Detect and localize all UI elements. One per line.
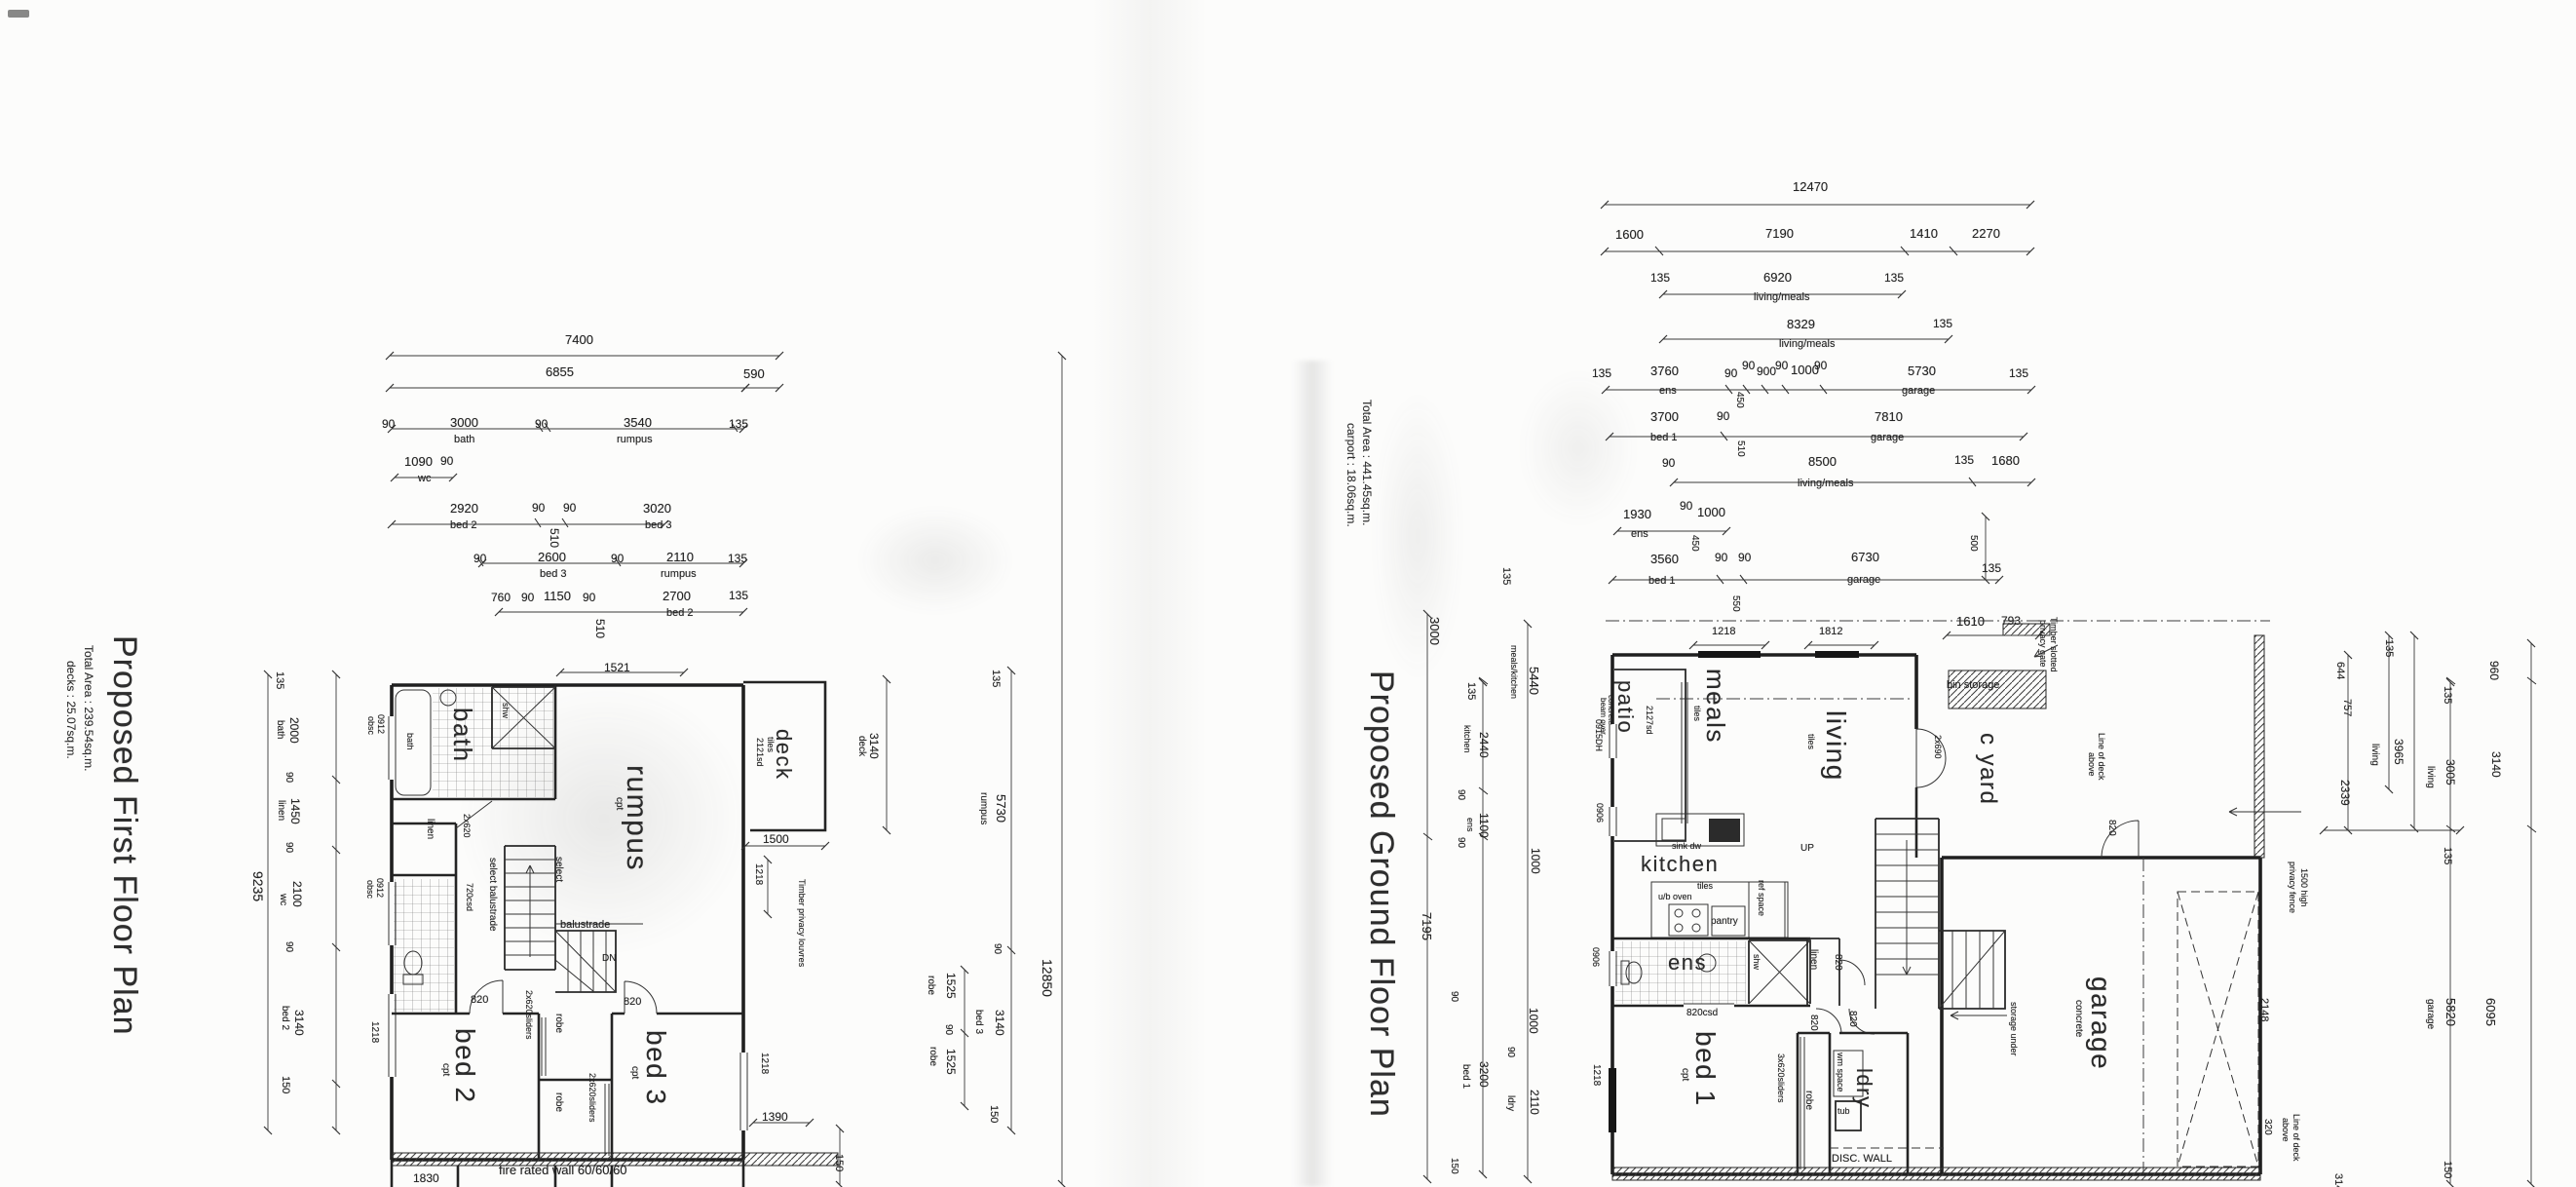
plan-label: 3005 <box>2444 759 2456 785</box>
stair-arrows <box>1903 840 2007 1019</box>
plan-label: 1100 <box>1478 813 1490 838</box>
first-floor-area-decks: decks : 25.07sq.m. <box>64 661 78 759</box>
plan-label: 3760 <box>1650 364 1679 377</box>
plan-label: cpt <box>440 1063 450 1076</box>
plan-label: 90 <box>440 455 453 467</box>
plan-label: shw <box>1752 954 1761 970</box>
plan-label: kitchen <box>1641 854 1719 875</box>
plan-label: 1500 <box>763 833 789 845</box>
plan-label: 2x620 <box>462 814 471 838</box>
plan-label: 90 <box>611 553 624 564</box>
plan-label: 3965 <box>2393 739 2405 765</box>
plan-label: 90 <box>1724 367 1737 379</box>
plan-label: 1390 <box>762 1111 788 1123</box>
plan-label: 793 <box>2001 615 2021 627</box>
cooktop <box>1669 904 1708 936</box>
plan-label: 90 <box>992 943 1002 954</box>
plan-label: wc <box>418 474 431 484</box>
plan-label: bed 1 <box>1650 433 1678 443</box>
plan-label: privacy fence <box>2288 862 2296 913</box>
plan-label: 2339 <box>2339 780 2351 806</box>
plan-label: 1090 <box>404 455 433 468</box>
plan-label: u/b oven <box>1658 893 1692 901</box>
plan-label: Line of deck <box>2292 1114 2300 1162</box>
plan-label: living/meals <box>1754 292 1809 303</box>
plan-label: 550 <box>1730 595 1740 612</box>
plan-label: 90 <box>521 592 534 603</box>
plan-label: 6920 <box>1763 271 1792 284</box>
plan-label: 2920 <box>450 502 478 515</box>
plan-label: meals/kitchen <box>1509 645 1518 699</box>
top-window-bar <box>1815 651 1859 658</box>
plan-label: 8500 <box>1808 455 1837 468</box>
plan-label: 135 <box>1650 272 1670 284</box>
plan-label: 1500 high <box>2299 868 2308 907</box>
plan-label: 0912 <box>376 714 385 734</box>
plan-label: 1610 <box>1956 615 1985 628</box>
plan-label: 450 <box>1734 392 1744 408</box>
plan-label: shw <box>501 703 510 718</box>
plan-label: ens <box>1631 529 1648 540</box>
plan-label: 90 <box>1742 360 1755 371</box>
plan-label: 2127sd <box>1645 706 1653 735</box>
plan-label: 820 <box>471 995 488 1006</box>
plan-label: 720csd <box>465 883 474 911</box>
plan-label: 2121sd <box>755 738 764 767</box>
plan-label: 6095 <box>2484 998 2497 1026</box>
plan-label: robe <box>928 1047 937 1066</box>
plan-label: pantry <box>1711 917 1738 927</box>
plan-label: bed 2 <box>450 520 477 531</box>
plan-label: living <box>1822 710 1849 782</box>
plan-label: 2x690 <box>1933 735 1942 759</box>
ground-floor-area-total: Total Area : 441.45sq.m. <box>1360 400 1374 525</box>
plan-label: meals <box>1703 669 1728 744</box>
plan-label: 3200 <box>1478 1061 1490 1088</box>
plan-label: 2600 <box>538 551 566 563</box>
plan-label: above <box>2087 752 2096 777</box>
plan-label: balustrade <box>560 920 610 931</box>
plan-label: 2700 <box>663 590 691 602</box>
plan-label: ens <box>1659 386 1677 397</box>
plan-label: bed 3 <box>973 1010 983 1034</box>
plan-label: cpt <box>1680 1068 1689 1081</box>
plan-label: 5820 <box>2444 998 2457 1026</box>
plan-label: 90 <box>532 502 545 514</box>
plan-label: 1830 <box>413 1172 439 1184</box>
plan-label: 1000 <box>1697 506 1725 518</box>
plan-label: 1000 <box>1528 1008 1539 1034</box>
dishwasher <box>1709 819 1740 842</box>
plan-label: 1600 <box>1615 228 1644 241</box>
plan-label: DN <box>602 954 616 964</box>
plan-label: 1218 <box>759 1053 769 1074</box>
plan-label: 135 <box>1500 567 1511 585</box>
plan-label: 150 <box>833 1154 844 1171</box>
plan-label: 5440 <box>1528 667 1540 695</box>
plan-label: 12850 <box>1041 959 1054 997</box>
plan-label: rumpus <box>661 569 697 580</box>
plan-label: ref space <box>1757 880 1765 916</box>
plan-label: 3020 <box>643 502 671 515</box>
plan-label: 820 <box>2106 820 2116 836</box>
plan-label: 7810 <box>1875 410 1903 423</box>
plan-label: 135 <box>2009 367 2028 379</box>
plan-label: 1450 <box>289 798 301 824</box>
plan-label: 2270 <box>1972 227 2000 240</box>
plan-label: robe <box>926 976 935 995</box>
plan-label: 3140 <box>868 733 880 759</box>
plan-label: obsc <box>366 716 375 735</box>
plan-label: 9235 <box>251 871 265 901</box>
plan-label: bed 2 <box>666 608 694 619</box>
plan-label: linen <box>1808 949 1818 970</box>
plan-label: robe <box>553 1092 563 1112</box>
plan-label: select <box>553 857 563 882</box>
plan-label: obsc <box>365 880 374 899</box>
plan-label: 760 <box>491 592 511 603</box>
plan-label: tiles <box>766 737 775 752</box>
privacy-fence-hatch <box>2254 635 2264 858</box>
plan-label: garage <box>1847 575 1880 586</box>
plan-label: 135 <box>729 418 748 430</box>
bottom-wall-hatch <box>1612 1168 2260 1180</box>
plan-label: 135 <box>990 670 1001 687</box>
plan-label: rumpus <box>617 435 653 445</box>
plan-label: tiles <box>1692 706 1701 721</box>
plan-label: 135 <box>1884 272 1904 284</box>
plan-label: concrete <box>2073 1000 2083 1037</box>
plan-label: storage under <box>2009 1002 2018 1056</box>
plan-label: bath <box>454 435 474 445</box>
plan-label: bin storage <box>1947 680 1999 691</box>
plan-label: ldry <box>1853 1068 1875 1108</box>
plan-label: 510 <box>1735 440 1745 457</box>
plan-label: 7195 <box>1421 912 1433 940</box>
plan-label: 3140 <box>2332 1173 2343 1187</box>
plan-label: ens <box>1668 952 1707 974</box>
plan-label: living <box>2369 744 2379 766</box>
plan-label: 2000 <box>288 717 300 744</box>
plan-label: 90 <box>1449 991 1458 1002</box>
plan-label: c yard <box>1976 733 1999 805</box>
plan-label: Timber privacy louvres <box>797 879 806 967</box>
plan-label: 90 <box>1814 360 1827 371</box>
burner <box>1675 924 1683 932</box>
door-arcs <box>1816 960 1875 1034</box>
plan-label: 1000 <box>1530 848 1541 874</box>
plan-label: above <box>2281 1118 2290 1142</box>
plan-label: 3140 <box>2490 751 2502 778</box>
plan-label: 90 <box>382 418 395 430</box>
plan-label: bath <box>450 708 475 763</box>
plan-label: 90 <box>1456 837 1465 848</box>
plan-label: 1218 <box>1591 1064 1601 1086</box>
plan-label: 644 <box>2334 662 2345 679</box>
burner <box>1675 909 1683 917</box>
plan-label: 90 <box>563 502 576 514</box>
plan-label: 1521 <box>604 662 630 673</box>
plan-label: 1410 <box>1910 227 1938 240</box>
plan-label: cpt <box>614 797 624 810</box>
plan-label: rumpus <box>622 765 651 871</box>
plan-label: 6730 <box>1851 551 1879 563</box>
plan-linework <box>0 0 2576 1187</box>
plan-label: 3000 <box>450 416 478 429</box>
ground-floor-title: Proposed Ground Floor Plan <box>1362 670 1400 1118</box>
burner <box>1692 924 1700 932</box>
plan-label: 135 <box>2442 847 2452 864</box>
plan-label: 820 <box>1833 954 1842 971</box>
ground-floor-area-carport: carport : 18.06sq.m. <box>1345 423 1358 527</box>
plan-label: deck <box>856 736 866 756</box>
plan-label: privacy gate <box>2038 620 2047 668</box>
plan-label: 1525 <box>945 1049 957 1075</box>
plan-label: 7400 <box>565 333 593 346</box>
plan-label: 135 <box>1465 682 1476 700</box>
plan-label: 150 <box>988 1105 999 1123</box>
shower-x <box>1749 940 1810 1004</box>
first-floor-title: Proposed First Floor Plan <box>105 635 143 1036</box>
plan-label: 0906 <box>1595 803 1604 823</box>
plan-label: bath <box>405 733 414 750</box>
plan-label: 2x620sliders <box>587 1073 596 1123</box>
plan-label: garage <box>2087 976 2114 1070</box>
plan-label: concrete <box>1607 695 1614 725</box>
plan-label: bed 3 <box>642 1030 669 1106</box>
plan-label: robe <box>1803 1091 1813 1110</box>
plan-label: 0906 <box>1591 947 1600 967</box>
plan-label: 590 <box>743 367 765 380</box>
plan-label: Line of deck <box>2097 733 2105 781</box>
plan-label: 757 <box>2341 699 2352 716</box>
first-floor-area-total: Total Area : 239.54sq.m. <box>82 645 95 771</box>
plan-label: 1218 <box>369 1021 379 1043</box>
plan-label: living/meals <box>1779 339 1835 350</box>
plan-label: UP <box>1800 844 1814 854</box>
plan-label: garage <box>2425 999 2435 1029</box>
burner <box>1692 909 1700 917</box>
plan-label: patio <box>1614 680 1636 734</box>
plan-label: DISC. WALL <box>1832 1154 1892 1165</box>
plan-label: 3540 <box>624 416 652 429</box>
plan-label: 90 <box>284 772 293 783</box>
plan-label: 135 <box>274 671 284 689</box>
plan-label: 90 <box>1456 789 1465 800</box>
plan-label: 1680 <box>1991 454 2020 467</box>
plan-label: 510 <box>594 619 606 638</box>
plan-label: 3140 <box>994 1010 1005 1036</box>
plan-label: 135 <box>2383 639 2394 657</box>
plan-label: 135 <box>2442 686 2452 704</box>
plan-label: garage <box>1871 433 1904 443</box>
plan-label: ldry <box>1505 1095 1515 1111</box>
plan-label: bed 2 <box>280 1006 289 1030</box>
plan-label: bed 3 <box>540 569 567 580</box>
plan-label: 1525 <box>945 973 957 999</box>
ref-space-box <box>1749 882 1785 938</box>
plan-label: 90 <box>1775 360 1788 371</box>
plan-label: 2110 <box>1529 1090 1540 1115</box>
plan-label: 12470 <box>1793 180 1828 193</box>
plan-label: 3x620sliders <box>1776 1053 1785 1103</box>
plan-label: bed 1 <box>1648 576 1676 587</box>
plan-label: 3560 <box>1650 553 1679 565</box>
plan-label: 1150 <box>544 590 571 602</box>
plan-label: 500 <box>1968 535 1978 552</box>
plan-label: 2x620sliders <box>524 990 533 1040</box>
plan-label: 90 <box>583 592 595 603</box>
plan-label: 90 <box>943 1024 953 1035</box>
plan-label: robe <box>553 1014 563 1033</box>
ground-floor-plan <box>1423 205 2536 1184</box>
plan-label: 0912 <box>375 878 384 898</box>
plan-label: sink dw <box>1672 842 1701 851</box>
plan-label: 90 <box>1662 457 1675 469</box>
plan-label: 820csd <box>1686 1009 1718 1018</box>
plan-label: 6855 <box>546 365 574 378</box>
plan-label: 1812 <box>1819 627 1842 637</box>
plan-label: 135 <box>1592 367 1611 379</box>
plan-label: 3700 <box>1650 410 1679 423</box>
plan-label: Timber slotted <box>2049 617 2058 672</box>
plan-label: 150 <box>280 1076 290 1093</box>
plan-label: 3140 <box>293 1010 305 1036</box>
plan-label: 960 <box>2488 661 2500 680</box>
bed1-window-bar <box>1609 1068 1616 1132</box>
plan-label: 820 <box>1808 1015 1818 1031</box>
plan-label: wm space <box>1836 1053 1844 1092</box>
plan-label: 150 <box>1449 1158 1458 1174</box>
plan-label: 90 <box>1717 410 1729 422</box>
plan-label: 135 <box>1982 562 2001 574</box>
plan-label: 5730 <box>995 794 1007 823</box>
scanned-floor-plan-page: Proposed First Floor Plan Total Area : 2… <box>0 0 2576 1187</box>
top-window-bar <box>1698 651 1761 658</box>
plan-label: 135 <box>1933 318 1952 329</box>
plan-label: 135 <box>1954 454 1974 466</box>
plan-label: bed 2 <box>451 1028 478 1104</box>
plan-label: tiles <box>1806 734 1815 749</box>
bedroom-walls <box>456 1014 743 1160</box>
plan-label: select balustrade <box>487 858 497 932</box>
plan-label: 8329 <box>1787 318 1815 330</box>
plan-label: 90 <box>474 553 486 564</box>
plan-label: 90 <box>1505 1047 1515 1057</box>
plan-label: 150 <box>2442 1161 2452 1178</box>
plan-label: 2110 <box>666 551 694 563</box>
plan-label: 820 <box>624 997 641 1008</box>
plan-label: 900 <box>1757 365 1776 377</box>
stair-arrow-balustrade <box>526 865 643 957</box>
plan-label: 2440 <box>1478 732 1490 758</box>
plan-label: tiles <box>1697 882 1713 891</box>
plan-label: wc <box>278 894 287 905</box>
plan-label: tub <box>1837 1107 1850 1116</box>
plan-label: kitchen <box>1462 725 1471 753</box>
plan-label: living <box>2425 766 2435 788</box>
plan-label: 2100 <box>291 881 303 907</box>
plan-label: 90 <box>1738 552 1751 563</box>
plan-label: garage <box>1902 386 1935 397</box>
plan-label: 450 <box>1689 535 1699 552</box>
plan-label: deck <box>773 729 794 780</box>
plan-label: 135 <box>729 590 748 601</box>
plan-label: cpt <box>629 1066 639 1079</box>
plan-label: bed 1 <box>1691 1031 1719 1107</box>
wc-tiles <box>394 879 454 1012</box>
plan-label: 1218 <box>1712 627 1735 637</box>
plan-label: bed 1 <box>1460 1064 1470 1089</box>
plan-label: fire rated wall 60/60/60 <box>499 1164 627 1176</box>
plan-label: 820 <box>1847 1011 1857 1027</box>
plan-label: living/meals <box>1798 479 1853 489</box>
plan-label: linen <box>276 800 285 821</box>
plan-label: beam over <box>1599 698 1607 735</box>
plan-label: 320 <box>2262 1119 2272 1135</box>
plan-label: 7190 <box>1765 227 1794 240</box>
patio-slider <box>1682 682 1687 823</box>
plan-label: rumpus <box>978 792 988 824</box>
plan-label: 135 <box>728 553 747 564</box>
plan-label: 90 <box>284 842 293 853</box>
carport-x <box>2178 892 2258 1167</box>
plan-label: bath <box>275 720 284 739</box>
plan-label: 510 <box>549 528 560 548</box>
plan-label: linen <box>425 819 435 839</box>
plan-label: 90 <box>1715 552 1727 563</box>
plan-label: 90 <box>284 941 293 952</box>
plan-label: 5730 <box>1908 364 1936 377</box>
plan-label: ens <box>1465 818 1474 832</box>
plan-label: bed 3 <box>645 520 672 531</box>
plan-label: 90 <box>1680 500 1692 512</box>
plan-label: 3000 <box>1428 617 1441 645</box>
plan-label: 1930 <box>1623 508 1651 520</box>
plan-label: 2148 <box>2258 998 2269 1021</box>
plan-label: 90 <box>535 418 548 430</box>
plan-label: 1218 <box>753 863 763 885</box>
